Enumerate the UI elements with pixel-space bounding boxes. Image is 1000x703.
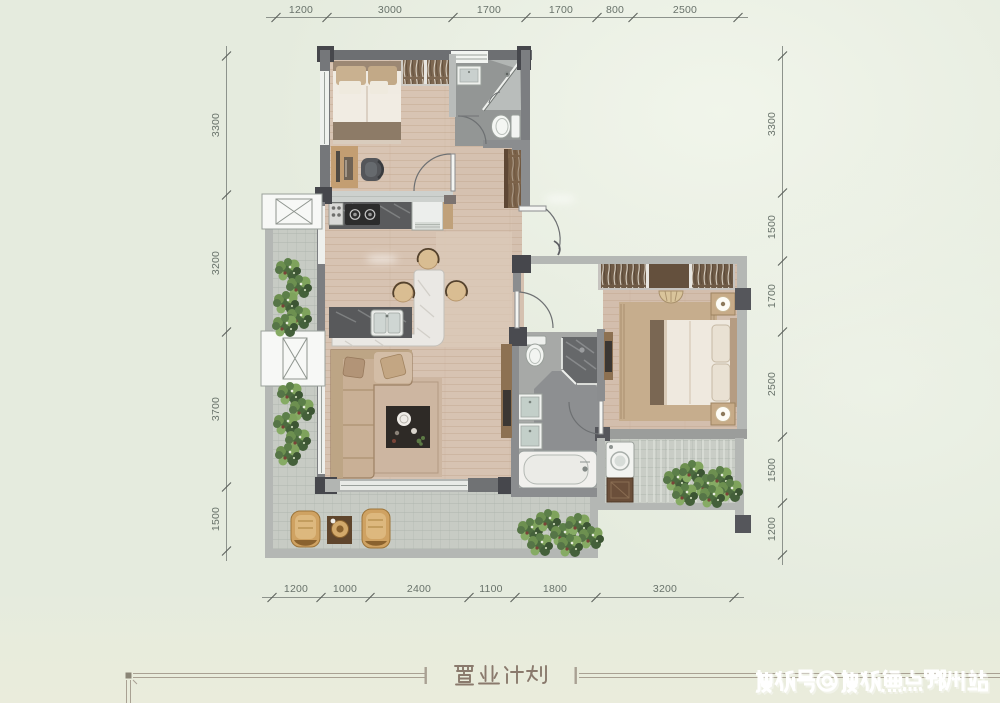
svg-text:1500: 1500 xyxy=(766,458,778,482)
svg-text:1500: 1500 xyxy=(210,507,222,531)
svg-text:1800: 1800 xyxy=(543,583,567,595)
svg-text:1000: 1000 xyxy=(333,583,357,595)
svg-text:3000: 3000 xyxy=(378,4,402,16)
svg-text:2500: 2500 xyxy=(673,4,697,16)
svg-text:3200: 3200 xyxy=(653,583,677,595)
svg-text:2400: 2400 xyxy=(407,583,431,595)
svg-text:800: 800 xyxy=(606,4,624,16)
svg-text:1200: 1200 xyxy=(289,4,313,16)
svg-text:1200: 1200 xyxy=(766,517,778,541)
svg-text:1100: 1100 xyxy=(479,583,502,595)
svg-text:1700: 1700 xyxy=(477,4,501,16)
svg-text:1200: 1200 xyxy=(284,583,308,595)
svg-text:3300: 3300 xyxy=(210,113,222,137)
svg-text:3200: 3200 xyxy=(210,251,222,275)
svg-text:1700: 1700 xyxy=(766,284,778,308)
svg-text:3300: 3300 xyxy=(766,112,778,136)
svg-text:1500: 1500 xyxy=(766,215,778,239)
svg-text:2500: 2500 xyxy=(766,372,778,396)
svg-text:3700: 3700 xyxy=(210,397,222,421)
svg-text:1700: 1700 xyxy=(549,4,573,16)
